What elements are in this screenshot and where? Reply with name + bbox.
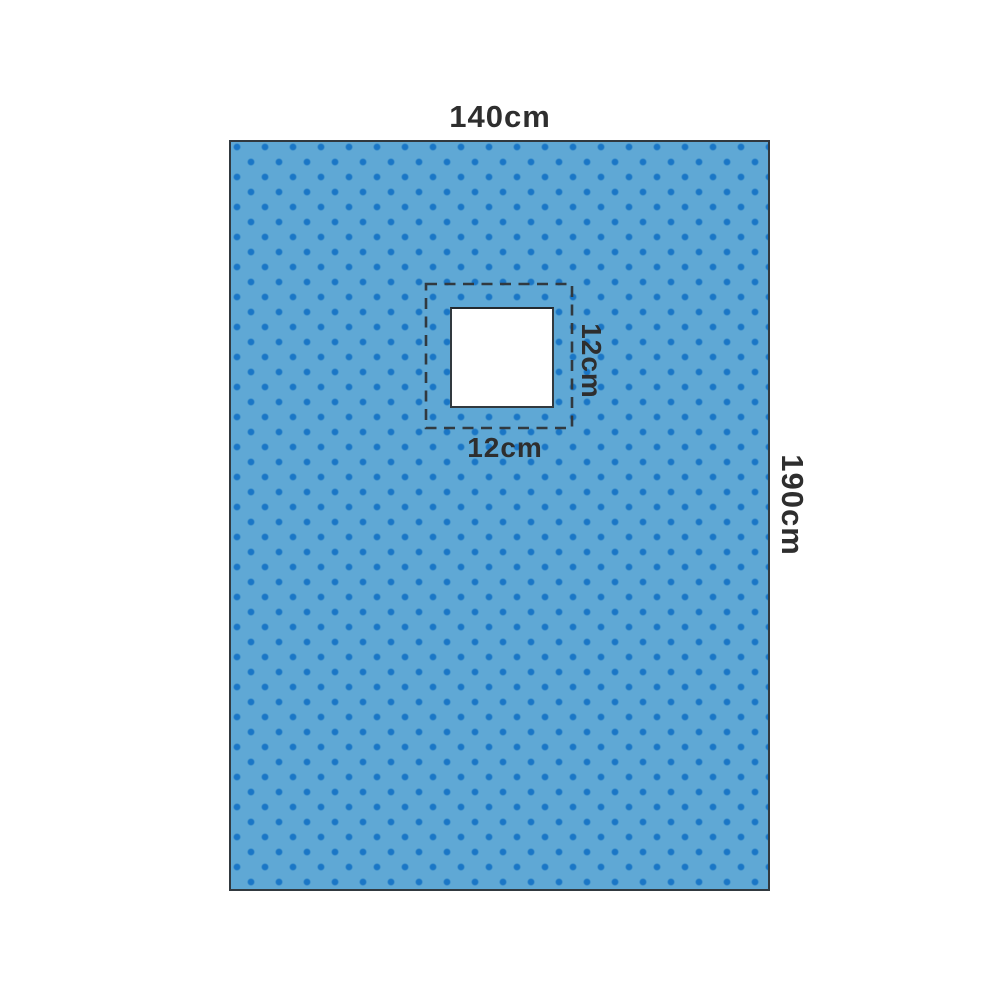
- drape-height-dimension-label: 190cm: [774, 454, 810, 556]
- surgical-drape-body: [229, 140, 770, 891]
- drape-dimension-diagram: 140cm 12cm 12cm 190cm: [0, 0, 1000, 1000]
- drape-width-dimension-label: 140cm: [449, 99, 551, 135]
- fenestration-hole: [450, 307, 554, 408]
- fenestration-height-dimension-label: 12cm: [575, 323, 607, 399]
- fenestration-width-dimension-label: 12cm: [467, 432, 543, 464]
